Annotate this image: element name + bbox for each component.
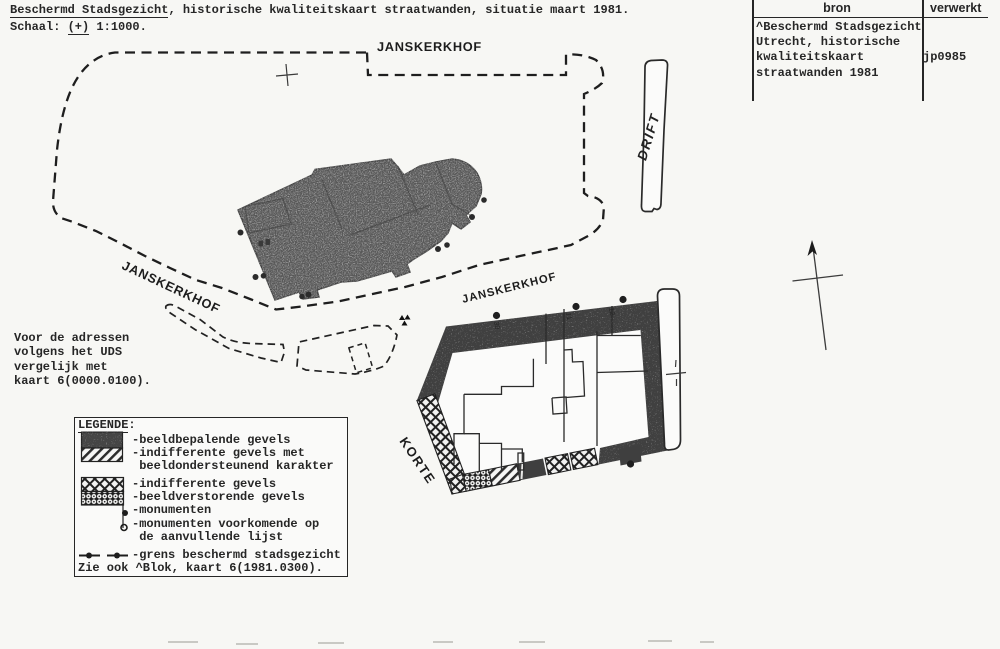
svg-text:11: 11	[564, 312, 572, 320]
svg-text:JANSKERKHOF: JANSKERKHOF	[377, 39, 482, 54]
svg-text:JANSKERKHOF: JANSKERKHOF	[461, 271, 558, 306]
svg-text:12: 12	[607, 307, 615, 316]
svg-text:JANSKERKHOF: JANSKERKHOF	[120, 258, 223, 317]
svg-text:30: 30	[492, 321, 500, 330]
